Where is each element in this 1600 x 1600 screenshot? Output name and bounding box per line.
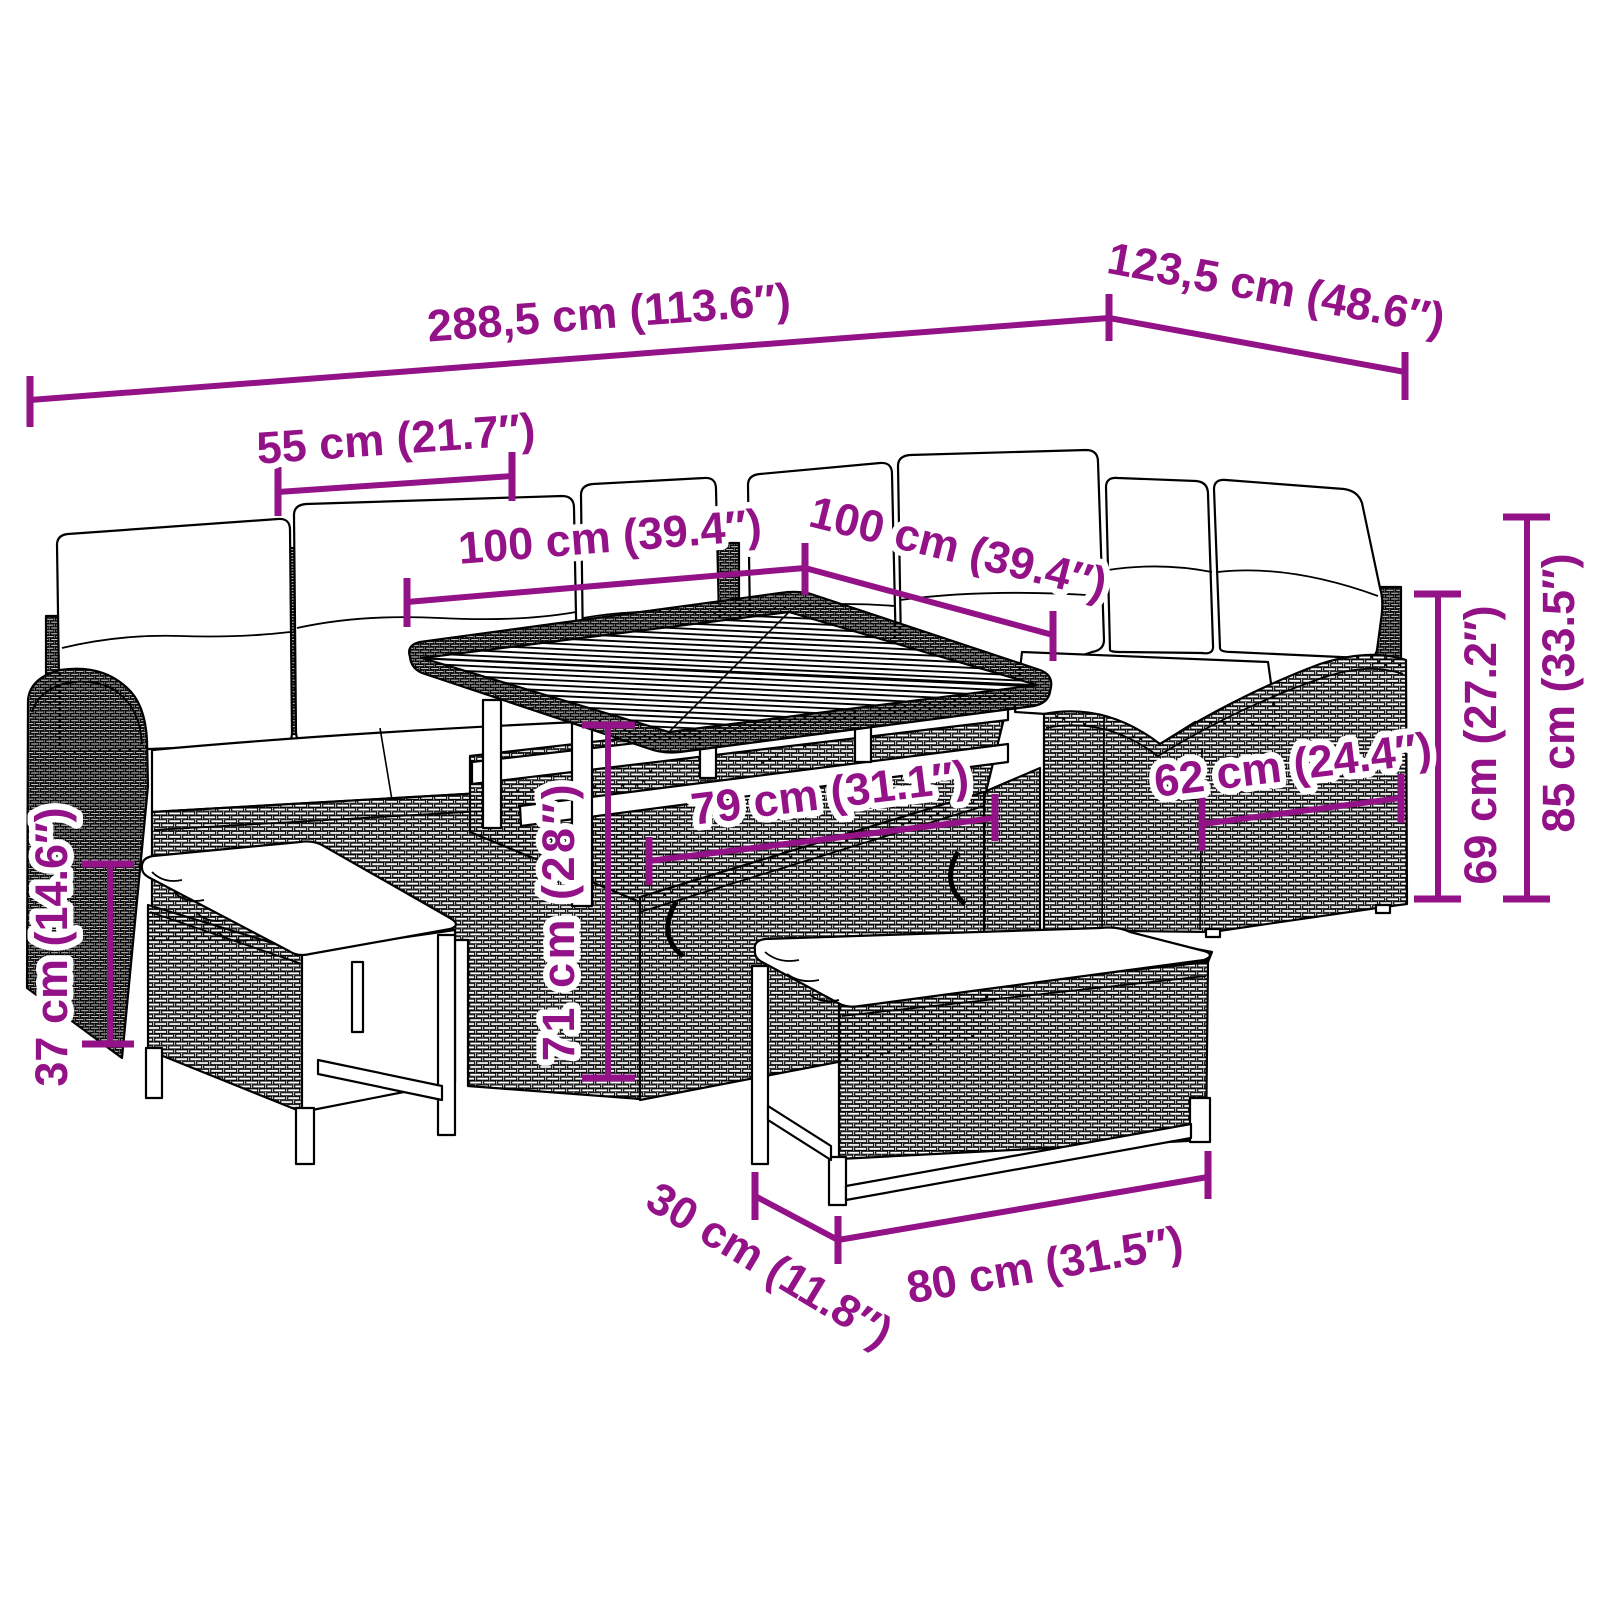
svg-text:85 cm (33.5″): 85 cm (33.5″) <box>1533 553 1584 832</box>
svg-text:69 cm (27.2″): 69 cm (27.2″) <box>1455 605 1506 884</box>
svg-text:71 cm (28″): 71 cm (28″) <box>533 781 584 1061</box>
svg-text:37 cm (14.6″): 37 cm (14.6″) <box>26 807 77 1086</box>
